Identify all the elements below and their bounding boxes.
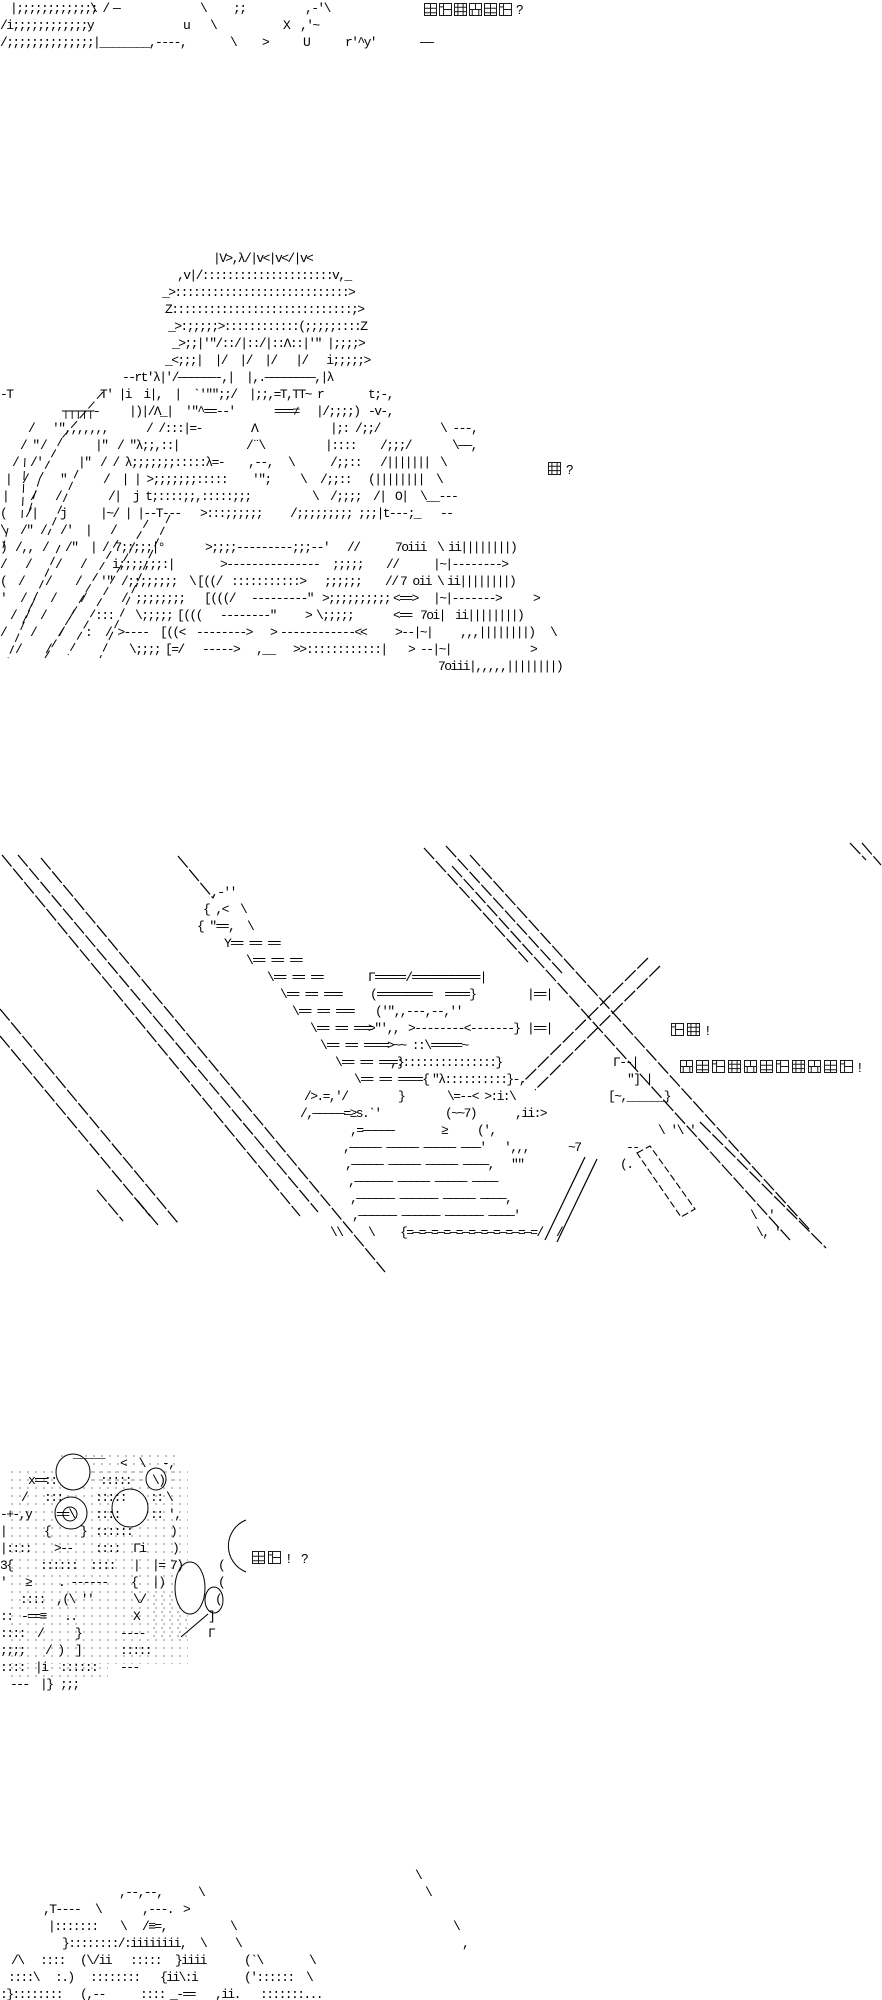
svg-text:!: ! [287, 1551, 291, 1566]
svg-text:?: ? [301, 1551, 308, 1566]
